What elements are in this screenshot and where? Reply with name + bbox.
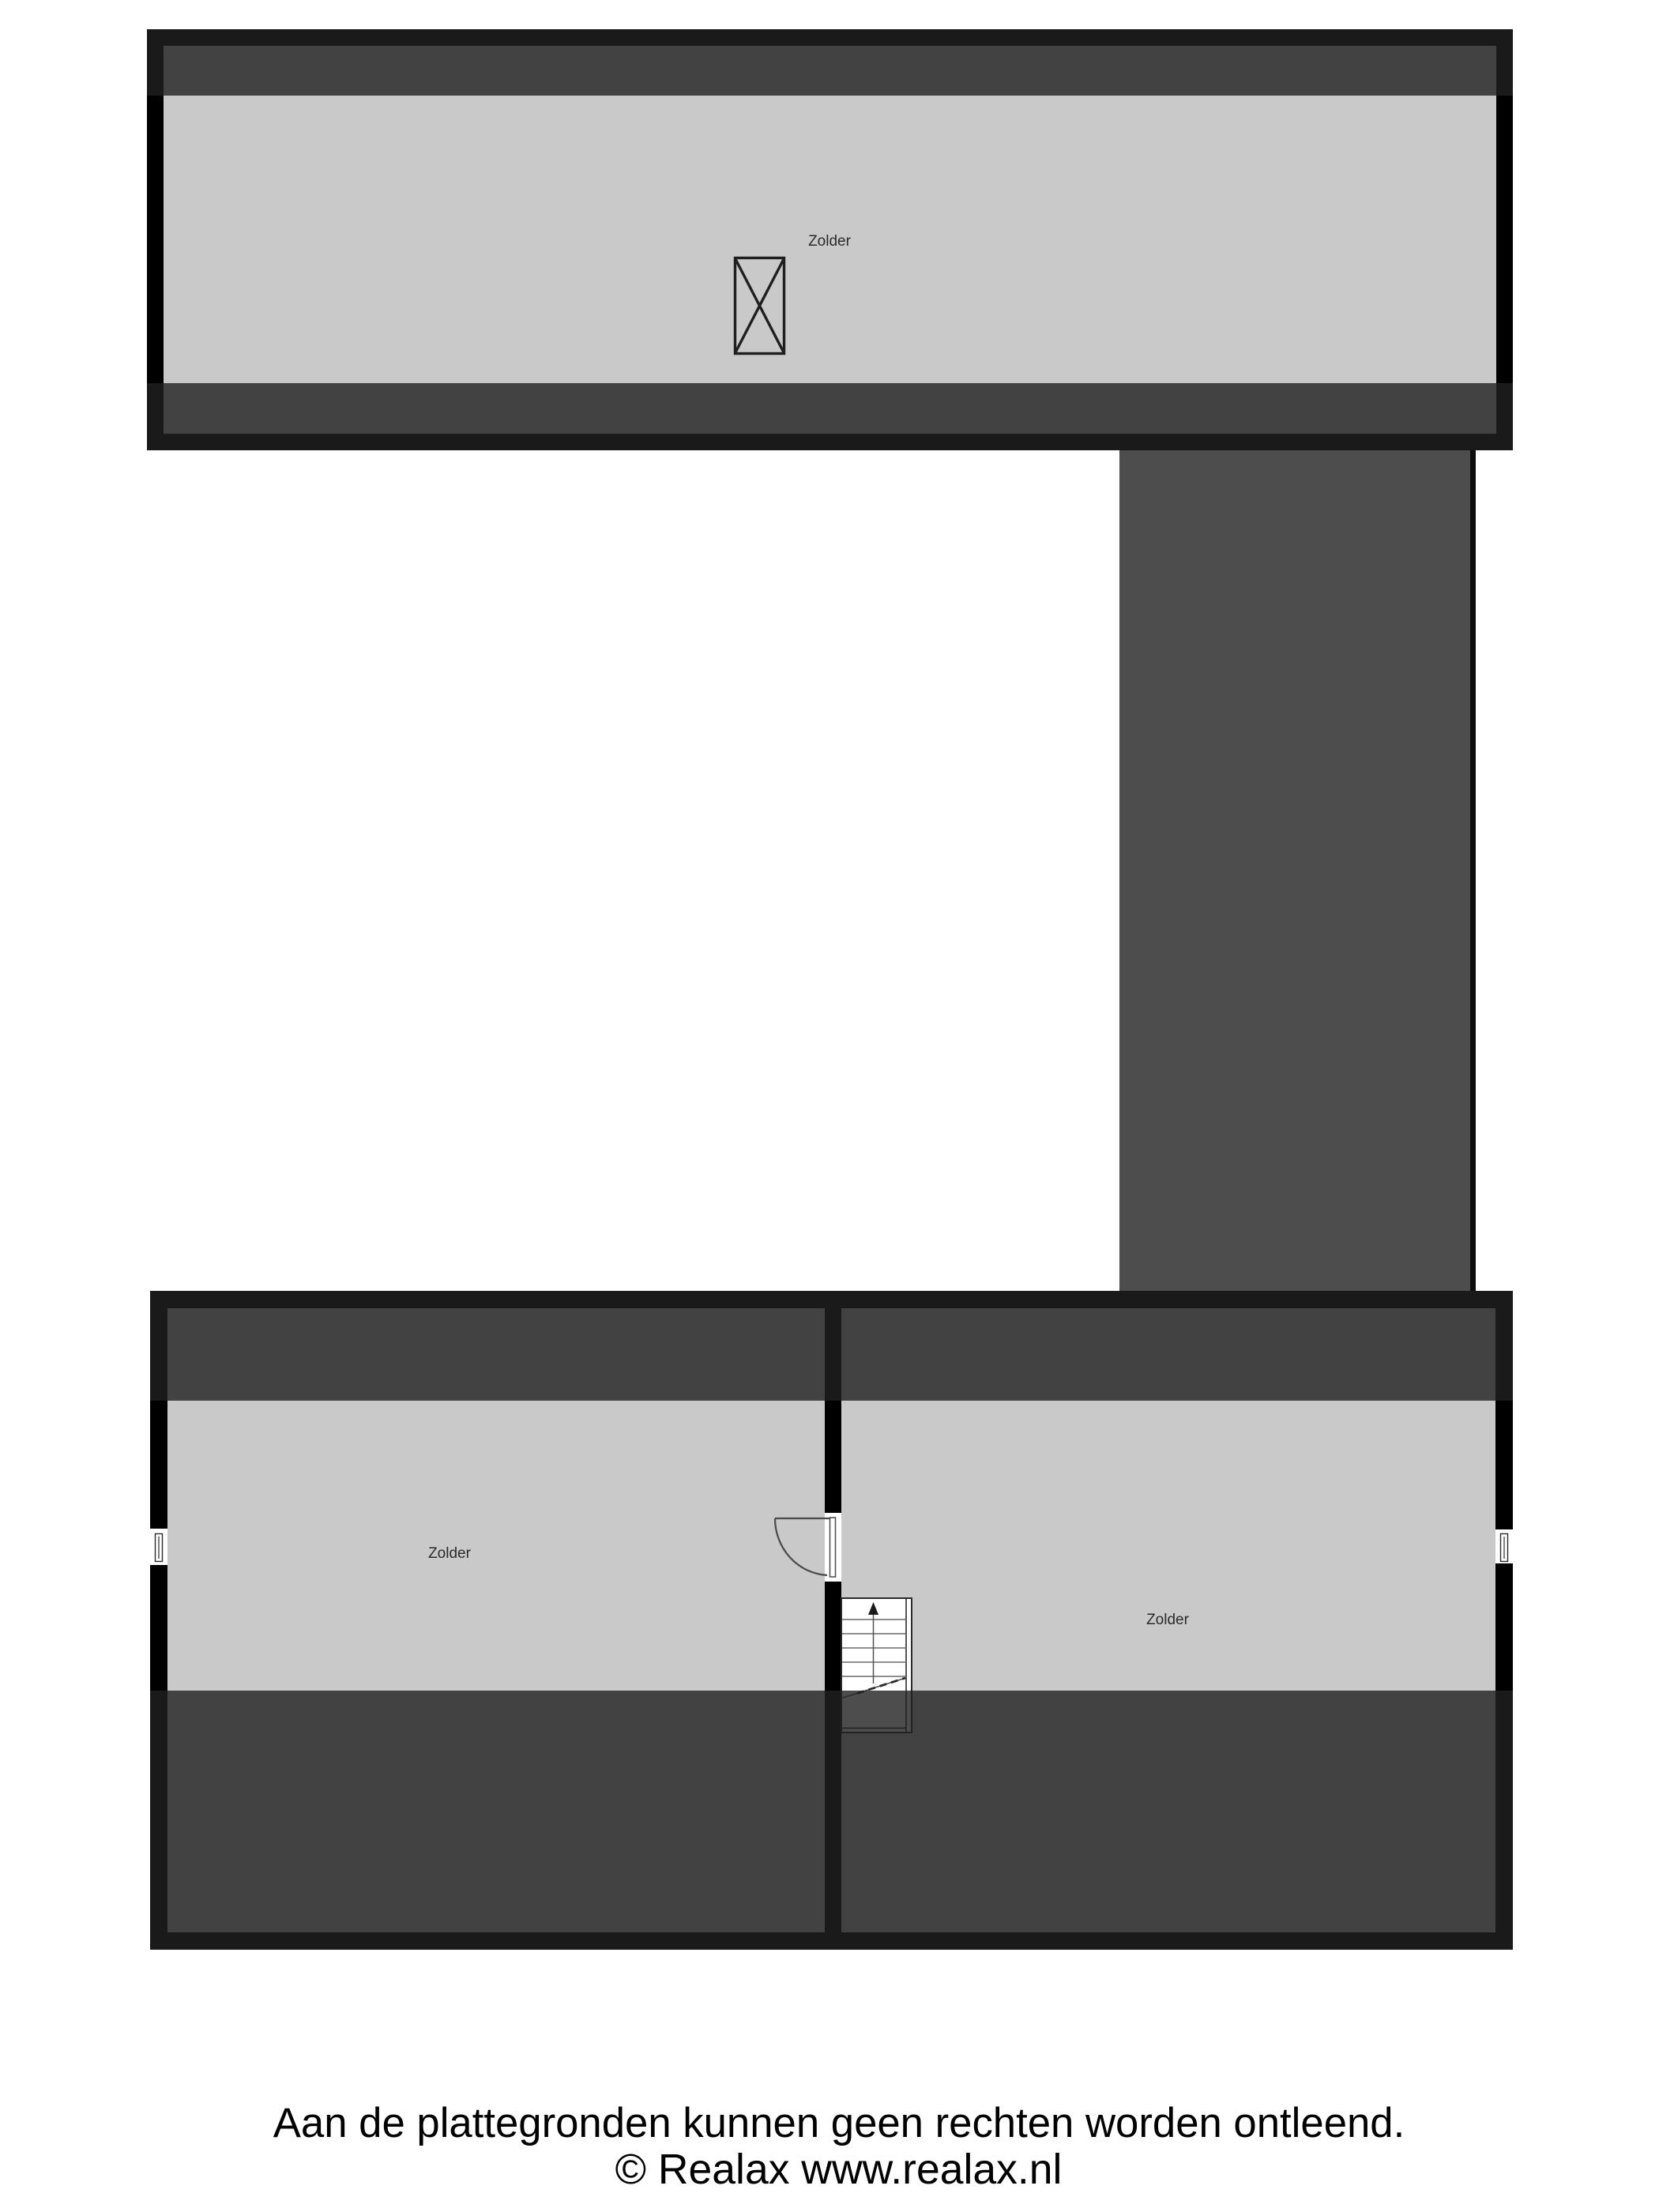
svg-text:Aan de plattegronden kunnen ge: Aan de plattegronden kunnen geen rechten… bbox=[273, 2100, 1405, 2146]
svg-text:© Realax www.realax.nl: © Realax www.realax.nl bbox=[615, 2146, 1063, 2193]
svg-text:Zolder: Zolder bbox=[1146, 1612, 1190, 1628]
svg-text:Zolder: Zolder bbox=[808, 233, 852, 250]
svg-text:Zolder: Zolder bbox=[428, 1545, 472, 1562]
